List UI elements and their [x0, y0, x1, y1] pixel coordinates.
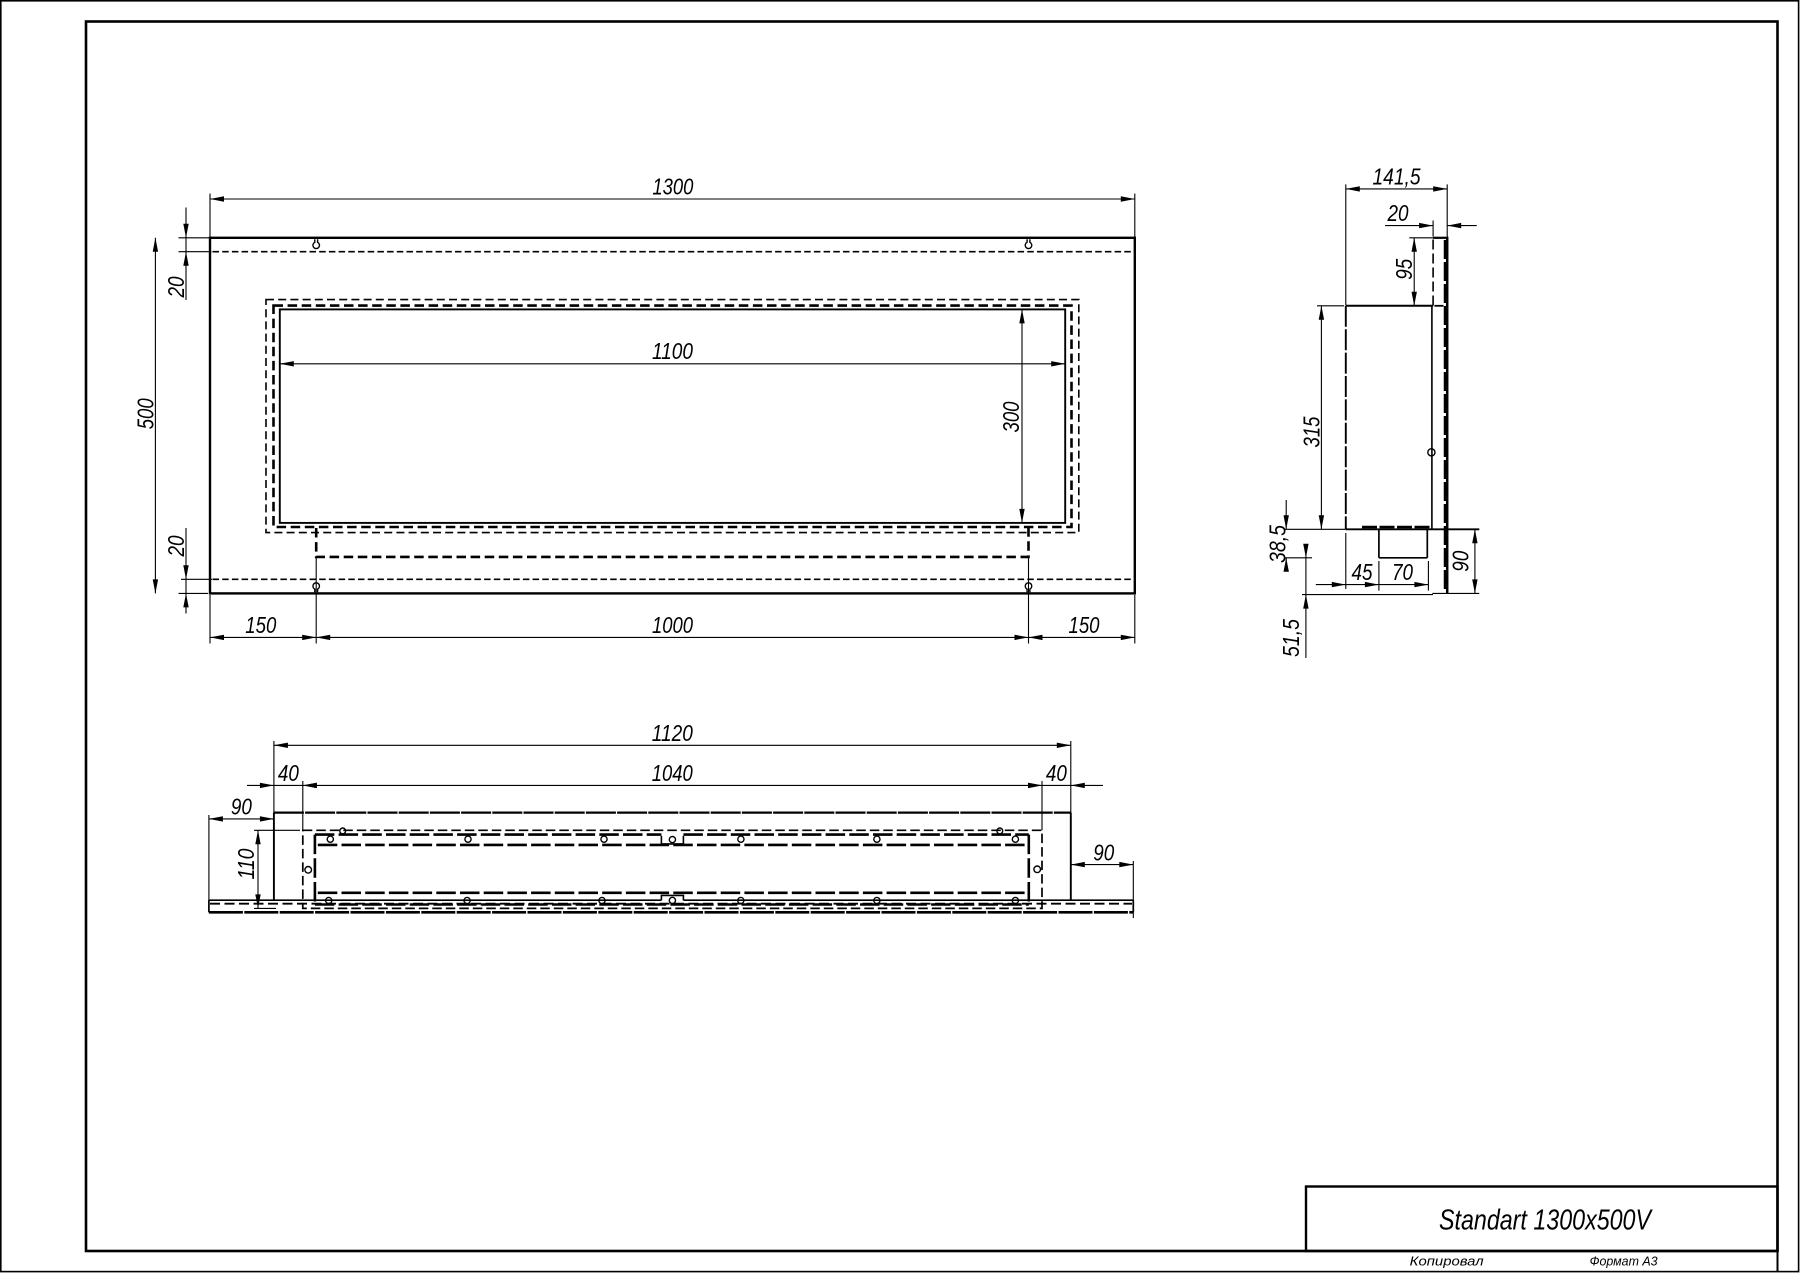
svg-text:40: 40 [1046, 760, 1067, 786]
svg-text:110: 110 [233, 848, 259, 879]
svg-text:20: 20 [163, 276, 189, 298]
svg-text:1000: 1000 [652, 612, 693, 638]
svg-text:90: 90 [1093, 839, 1114, 865]
svg-text:300: 300 [998, 401, 1024, 432]
svg-text:70: 70 [1392, 559, 1413, 585]
svg-text:Копировал: Копировал [1410, 1255, 1484, 1269]
svg-text:1120: 1120 [652, 720, 693, 746]
svg-text:150: 150 [1069, 612, 1100, 638]
svg-text:500: 500 [132, 398, 158, 429]
svg-text:51,5: 51,5 [1278, 619, 1304, 657]
svg-text:20: 20 [1387, 200, 1409, 226]
svg-text:1100: 1100 [652, 338, 693, 364]
svg-text:Standart 1300x500V: Standart 1300x500V [1439, 1205, 1653, 1237]
svg-text:1040: 1040 [652, 760, 693, 786]
svg-text:150: 150 [245, 612, 276, 638]
svg-text:40: 40 [278, 760, 299, 786]
svg-text:141,5: 141,5 [1373, 163, 1421, 189]
svg-text:95: 95 [1391, 259, 1417, 280]
svg-text:90: 90 [1448, 551, 1474, 572]
svg-text:38,5: 38,5 [1264, 525, 1290, 563]
svg-text:45: 45 [1352, 559, 1373, 585]
svg-text:315: 315 [1298, 416, 1324, 447]
svg-text:1300: 1300 [652, 174, 693, 200]
svg-text:20: 20 [163, 535, 189, 557]
svg-text:90: 90 [231, 793, 252, 819]
svg-text:Формат А3: Формат А3 [1590, 1255, 1658, 1269]
